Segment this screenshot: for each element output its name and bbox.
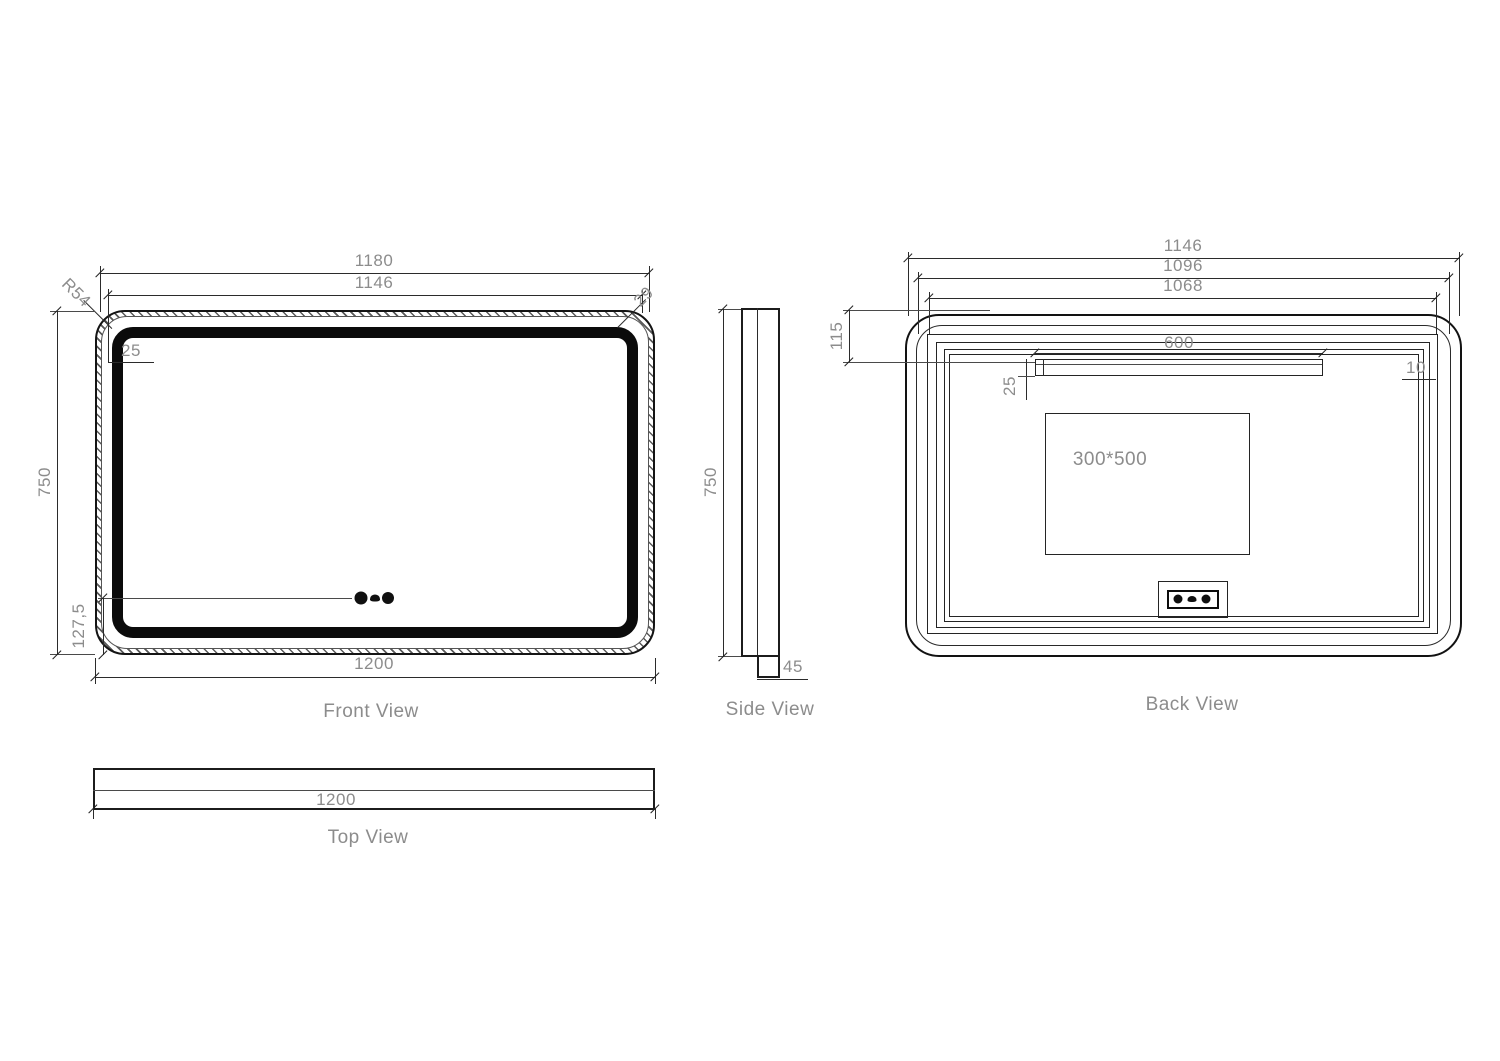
side-view-label: Side View xyxy=(726,699,815,721)
extension-line xyxy=(655,658,656,684)
top-view-glass-line xyxy=(93,790,655,791)
side-view-outline xyxy=(741,308,780,657)
dimension-line xyxy=(929,298,1436,299)
extension-line xyxy=(908,252,909,316)
front-view-label: Front View xyxy=(323,701,418,723)
extension-line xyxy=(95,658,96,684)
defogger-pad xyxy=(1045,413,1250,555)
extension-line xyxy=(1459,252,1460,316)
dimension-line xyxy=(108,295,642,296)
dimmer-sensor-icon xyxy=(382,592,394,604)
top-view-outline xyxy=(93,768,655,810)
dim-back-bracket-width: 600 xyxy=(1164,333,1194,353)
dim-front-sensor-offset: 127,5 xyxy=(69,603,89,648)
extension-line xyxy=(843,310,990,311)
dim-back-top-offset: 115 xyxy=(827,322,847,351)
dimension-line xyxy=(1402,379,1436,380)
dimension-line xyxy=(1026,359,1027,400)
technical-drawing-sheet: 1180 1146 25 R54 29 750 127,5 1200 Front… xyxy=(0,0,1500,1061)
dim-front-led-inset: 25 xyxy=(121,341,141,361)
dim-back-width-outer: 1146 xyxy=(1164,236,1203,256)
defog-sensor-icon xyxy=(370,595,380,602)
back-view-label: Back View xyxy=(1146,694,1239,716)
extension-line xyxy=(1018,376,1035,377)
hanging-bracket-fold-line xyxy=(1036,364,1322,365)
extension-line xyxy=(1449,272,1450,334)
dim-front-height: 750 xyxy=(35,467,55,497)
dimension-line xyxy=(1035,353,1323,354)
dim-back-width-inner: 1068 xyxy=(1163,276,1203,296)
dim-front-width-outer: 1180 xyxy=(355,251,394,271)
dimension-line xyxy=(757,679,808,680)
leader-line xyxy=(98,598,352,599)
dim-top-width: 1200 xyxy=(316,790,356,810)
dim-back-bracket-height: 25 xyxy=(1000,376,1020,396)
dim-side-depth: 45 xyxy=(783,657,803,677)
extension-line xyxy=(843,362,1035,363)
hanging-bracket-end-line xyxy=(1043,359,1044,376)
dim-side-height: 750 xyxy=(701,467,721,497)
defogger-size-label: 300*500 xyxy=(1073,449,1147,471)
dim-back-frame-gap: 10 xyxy=(1406,358,1426,378)
dim-front-width-inner: 1146 xyxy=(355,273,394,293)
dimension-line xyxy=(108,362,154,363)
extension-line xyxy=(918,272,919,334)
dimension-line xyxy=(57,311,58,655)
dimension-line xyxy=(103,598,104,655)
side-view-backbox xyxy=(757,655,780,678)
dim-back-width-mid: 1096 xyxy=(1163,256,1203,276)
top-view-label: Top View xyxy=(328,827,409,849)
dim-front-edge-gap: 29 xyxy=(630,283,658,311)
dimension-line xyxy=(723,309,724,657)
dimmer-port-icon xyxy=(1202,595,1211,604)
power-port-icon xyxy=(1174,595,1183,604)
hanging-bracket xyxy=(1035,359,1323,376)
front-view-led-strip xyxy=(112,327,638,638)
side-view-glass-line xyxy=(757,308,758,657)
front-view-mirror-outline xyxy=(95,310,655,655)
dimension-line xyxy=(849,310,850,362)
dim-front-total-width: 1200 xyxy=(354,654,394,674)
power-sensor-icon xyxy=(355,592,368,605)
defog-port-icon xyxy=(1188,596,1197,602)
dimension-line xyxy=(95,677,655,678)
